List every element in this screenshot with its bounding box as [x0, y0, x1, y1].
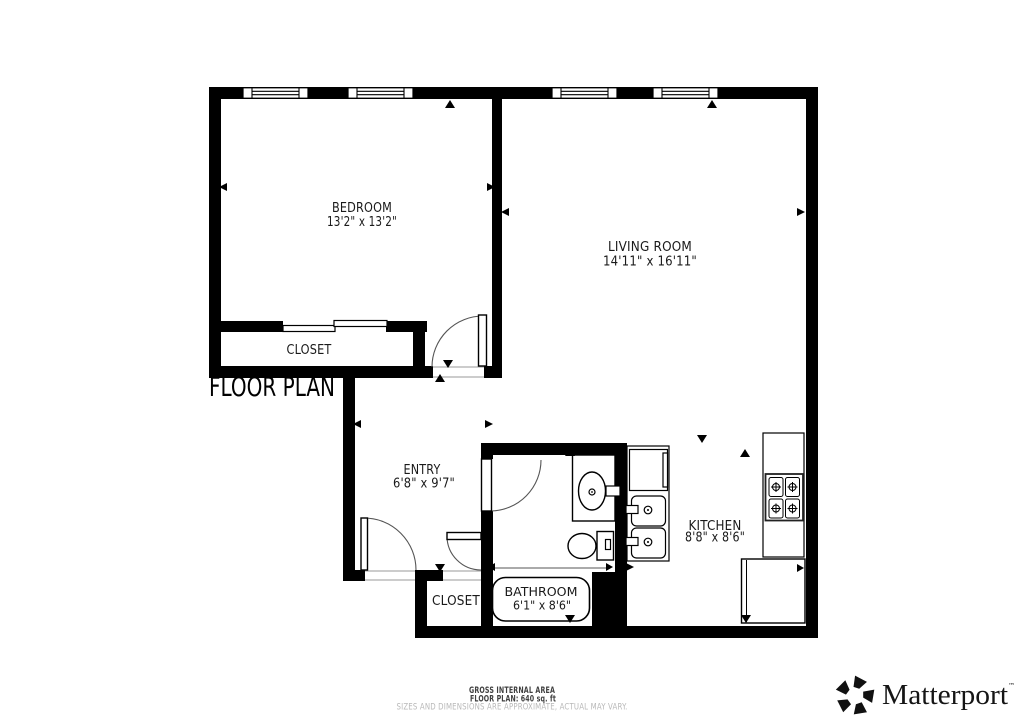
footer: GROSS INTERNAL AREA FLOOR PLAN: 640 sq. …: [397, 686, 628, 713]
drain-dot-icon: [647, 541, 649, 543]
appliance-handle-icon: [663, 453, 668, 487]
arrow-up-icon: [445, 100, 455, 108]
wall-closet1-right: [413, 332, 425, 366]
matterport-wordmark: Matterport: [882, 679, 1008, 711]
wall-divider-foot: [484, 366, 502, 378]
living-room-dims: 14'11" x 16'11": [603, 255, 697, 270]
wall-bathroom-left-a: [481, 443, 493, 459]
wall-bathroom-top: [481, 443, 627, 455]
trademark-symbol: ™: [1008, 682, 1015, 690]
page-title: FLOOR PLAN: [209, 372, 335, 403]
matterport-pinwheel-icon: [836, 676, 874, 715]
brand-logo: Matterport ™: [836, 676, 1015, 715]
arrow-down-icon: [697, 435, 707, 443]
bedroom-label: BEDROOM: [332, 201, 392, 216]
arrow-up-icon: [740, 449, 750, 457]
disclaimer-text: SIZES AND DIMENSIONS ARE APPROXIMATE, AC…: [397, 703, 628, 713]
sliding-closet-door-icon: [283, 321, 387, 332]
wall-bedroom-living-divider: [492, 99, 502, 378]
faucet-icon: [626, 506, 638, 514]
refrigerator-icon: [742, 559, 806, 623]
window-icon: [243, 88, 308, 98]
window-icon: [552, 88, 617, 98]
wall-bedroom-closet-b: [386, 321, 427, 332]
arrow-right-icon: [485, 420, 493, 428]
entry-closet-label: CLOSET: [432, 594, 480, 609]
drain-dot-icon: [647, 509, 649, 511]
wall-bathroom-left-b: [481, 511, 493, 638]
wall-entry-bottom-a: [343, 570, 365, 581]
arrow-right-icon: [606, 563, 613, 571]
faucet-icon: [626, 538, 638, 546]
floor-plan-page: BEDROOM 13'2" x 13'2" LIVING ROOM 14'11"…: [0, 0, 1024, 723]
window-icon: [653, 88, 718, 98]
wall-right: [806, 87, 818, 638]
faucet-icon: [606, 486, 620, 496]
window-icon: [348, 88, 413, 98]
closet-door-icon: [443, 533, 481, 581]
wall-tub-chase: [592, 572, 627, 637]
bathroom-dims: 6'1" x 8'6": [513, 598, 571, 613]
toilet-handle-icon: [606, 540, 611, 550]
arrow-up-icon: [435, 374, 445, 382]
arrow-left-icon: [501, 208, 509, 216]
arrow-right-icon: [797, 208, 805, 216]
kitchen-dims: 8'8" x 8'6": [685, 531, 745, 546]
wall-closet2-left: [415, 570, 427, 638]
arrow-right-icon: [626, 563, 634, 571]
bedroom-door-icon: [432, 315, 487, 377]
arrow-up-icon: [707, 100, 717, 108]
wall-bedroom-closet-a: [221, 321, 283, 332]
wall-entry-left: [343, 378, 355, 581]
floor-plan-drawing: BEDROOM 13'2" x 13'2" LIVING ROOM 14'11"…: [0, 0, 1024, 723]
walls: [209, 87, 818, 638]
room-labels: BEDROOM 13'2" x 13'2" LIVING ROOM 14'11"…: [287, 201, 746, 613]
entry-dims: 6'8" x 9'7": [393, 477, 455, 492]
stove-icon: [766, 474, 804, 521]
bedroom-dims: 13'2" x 13'2": [327, 215, 397, 230]
bathroom-door-icon: [482, 459, 542, 511]
living-room-label: LIVING ROOM: [608, 240, 692, 255]
dishwasher-icon: [630, 450, 668, 491]
toilet-bowl-icon: [568, 534, 596, 559]
bedroom-closet-label: CLOSET: [287, 343, 332, 358]
wall-left: [209, 87, 221, 378]
front-door-icon: [361, 518, 416, 580]
drain-dot-icon: [591, 491, 593, 493]
